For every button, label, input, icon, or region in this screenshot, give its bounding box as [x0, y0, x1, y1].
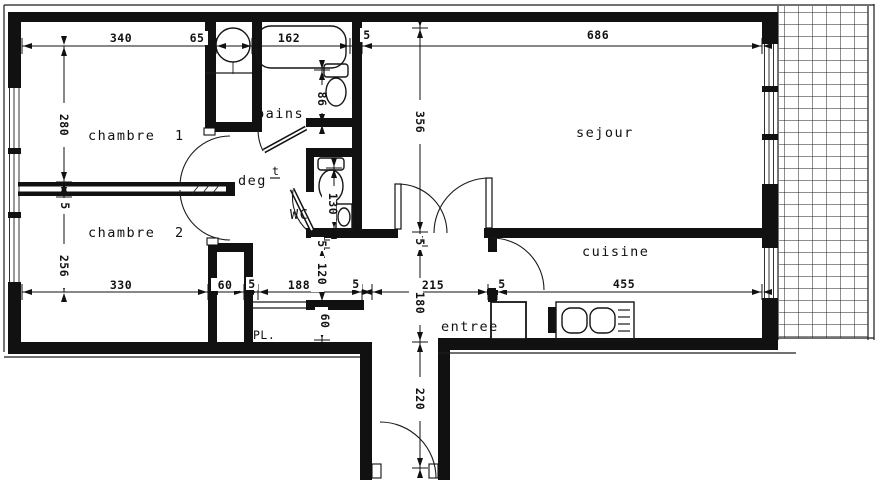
dimension-lines — [12, 18, 772, 478]
dim-330: 330 — [110, 278, 132, 292]
chambre1-door-swing — [180, 136, 230, 186]
dim-5-center: 5 — [315, 240, 329, 247]
closet1-left-wall — [205, 12, 216, 130]
chambre2-door-swing — [180, 190, 230, 240]
dim-215: 215 — [422, 278, 444, 292]
room-labels: chambre 1 chambre 2 bains deg t WC sejou… — [88, 106, 649, 342]
room-label-bains: bains — [256, 106, 304, 122]
mid-wall — [18, 182, 235, 196]
dim-86: 86 — [315, 92, 329, 107]
room-label-deg-sup: t — [272, 164, 279, 178]
bains-door-swing — [258, 130, 263, 151]
balcony — [778, 4, 874, 340]
dim-162: 162 — [278, 31, 300, 45]
floor-plan-drawing: 340 65 162 5 686 330 60 5 188 5 215 5 45… — [0, 0, 880, 492]
room-label-cuisine: cuisine — [582, 244, 649, 260]
bains-nook-wall — [306, 118, 352, 127]
corridor-wall-left — [360, 354, 372, 480]
floor-plan: 340 65 162 5 686 330 60 5 188 5 215 5 45… — [0, 0, 880, 492]
right-wall-lower — [762, 298, 778, 340]
outer-walls — [4, 5, 874, 480]
dim-256: 256 — [57, 255, 71, 277]
sejour-cuisine-wall — [484, 228, 778, 238]
room-label-placard: PL. — [253, 328, 275, 342]
dim-5-b1: 5 — [248, 277, 255, 291]
interior-walls — [18, 12, 778, 344]
deg-south-wall — [362, 229, 398, 238]
dim-5-b3: 5 — [498, 277, 505, 291]
sejour-window — [762, 44, 778, 184]
dim-5-right: 5 — [413, 238, 427, 245]
placard-front — [253, 300, 364, 310]
cuisine-door-jamb-wall — [488, 238, 497, 252]
room-label-sejour: sejour — [576, 125, 634, 141]
bottom-wall-left — [8, 342, 372, 354]
stove-icon — [548, 302, 634, 340]
room-label-wc: WC — [290, 207, 309, 223]
entry-door-jamb-right — [429, 464, 438, 478]
right-wall-middle — [762, 184, 778, 248]
dim-60-pl: 60 — [318, 314, 332, 329]
dim-340: 340 — [110, 31, 132, 45]
dim-455: 455 — [613, 277, 635, 291]
dim-5-b2: 5 — [352, 277, 359, 291]
dim-188: 188 — [288, 278, 310, 292]
top-wall — [8, 12, 778, 22]
dim-5-left: 5 — [58, 202, 72, 209]
corridor-wall-right — [438, 350, 450, 480]
balcony-tile-grid — [779, 6, 868, 338]
sejour-door-leaf-left — [395, 184, 401, 229]
dim-65: 65 — [190, 31, 205, 45]
room-label-deg: deg — [238, 173, 267, 189]
entry-door-swing — [380, 422, 436, 478]
sejour-door-leaf-right — [486, 178, 492, 228]
right-wall-upper — [762, 12, 778, 44]
entry-door-jamb-left — [372, 464, 381, 478]
wc-top-wall — [314, 148, 352, 157]
room-label-entree: entree — [441, 319, 499, 335]
room-label-chambre2: chambre 2 — [88, 225, 185, 241]
dim-120: 120 — [315, 263, 329, 285]
dim-356: 356 — [413, 111, 427, 133]
room-label-chambre1: chambre 1 — [88, 128, 185, 144]
dim-280: 280 — [57, 114, 71, 136]
chambre1-door-jamb — [204, 128, 215, 135]
left-wall-upper — [8, 12, 21, 88]
dim-180: 180 — [413, 292, 427, 314]
sejour-door-swing-right — [434, 178, 489, 233]
dim-130: 130 — [326, 193, 340, 215]
chambre2-door-jamb — [207, 238, 218, 245]
dim-60: 60 — [218, 278, 233, 292]
dim-686: 686 — [587, 28, 609, 42]
dim-5-top: 5 — [363, 28, 370, 42]
dim-220: 220 — [413, 388, 427, 410]
wc-left-wall — [306, 148, 314, 192]
